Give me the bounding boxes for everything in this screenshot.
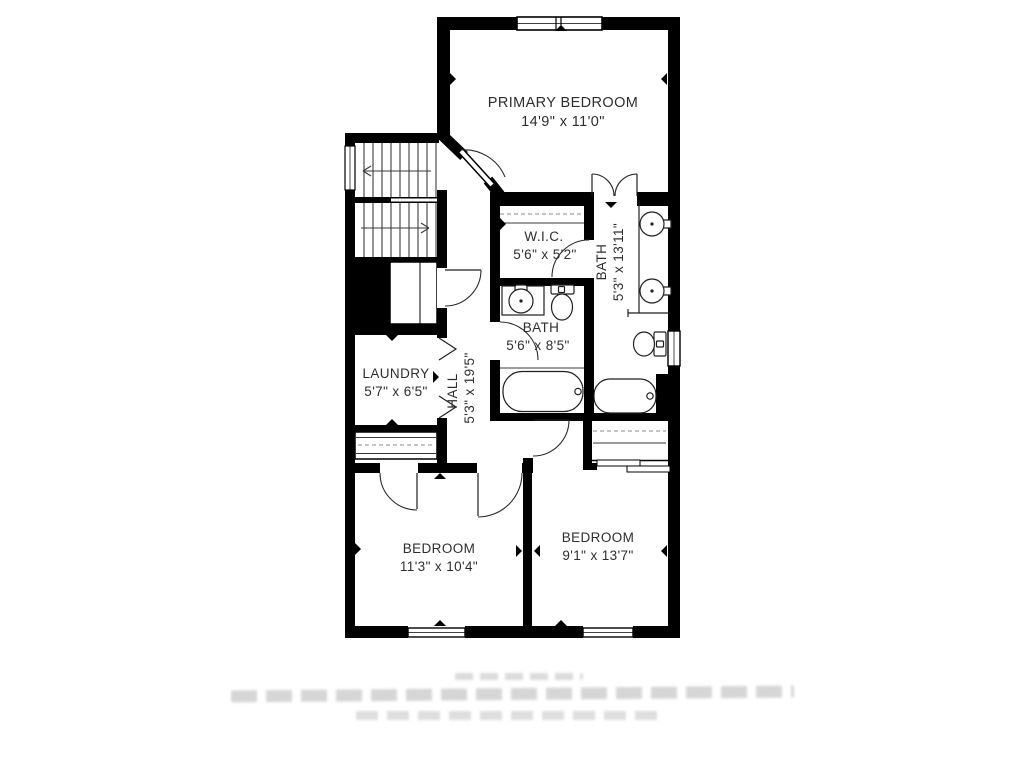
sliding-door-panel (597, 460, 640, 466)
under-stair-cabinet (390, 262, 437, 324)
room-label-primary-bedroom: PRIMARY BEDROOM (488, 95, 639, 111)
primary-bath-double-door (592, 174, 637, 196)
room-label-bedroom-right: BEDROOM (562, 530, 635, 545)
room-label-wic: W.I.C. (524, 229, 563, 244)
sink-icon (640, 279, 671, 303)
sliding-door-panel (627, 466, 670, 472)
toilet-icon (551, 285, 574, 320)
room-dims-hall-bath: 5'6" x 8'5" (506, 338, 569, 353)
bathtub-icon (503, 372, 583, 412)
primary-bath-vanity (628, 200, 671, 317)
stair-direction-arrow-down (361, 223, 429, 233)
primary-bath-window (668, 331, 680, 366)
laundry-hall-closet (355, 432, 437, 459)
floor-plan-page: PRIMARY BEDROOM 14'9" x 11'0" W.I.C. 5'6… (0, 0, 1024, 768)
floor-plan-drawing: PRIMARY BEDROOM 14'9" x 11'0" W.I.C. 5'6… (0, 0, 1024, 768)
toilet-icon (634, 332, 667, 356)
bedroom-left-window (408, 628, 465, 637)
room-label-hall-bath: BATH (523, 320, 560, 335)
room-label-hall: HALL (445, 373, 460, 408)
room-dims-primary-bath: 5'3" x 13'11" (611, 223, 626, 301)
blurred-disclaimer-line (356, 711, 664, 720)
bedroom-right-entry-door (533, 420, 569, 456)
hall-closet-door-gap (437, 268, 447, 308)
bedroom-left-entry-door (478, 473, 522, 517)
room-label-bedroom-left: BEDROOM (403, 541, 476, 556)
room-dims-hall: 5'3" x 19'5" (462, 352, 477, 423)
room-dims-laundry: 5'7" x 6'5" (364, 384, 427, 399)
room-dims-bedroom-right: 9'1" x 13'7" (562, 548, 633, 563)
hall-bath-vanity (502, 285, 544, 315)
bathtub-icon (594, 379, 656, 413)
room-dims-bedroom-left: 11'3" x 10'4" (400, 559, 478, 574)
hall-closet-door (445, 270, 481, 306)
room-label-primary-bath: BATH (594, 244, 609, 281)
room-dims-primary-bedroom: 14'9" x 11'0" (521, 114, 605, 130)
sink-icon (640, 212, 671, 236)
blurred-disclaimer-line (455, 673, 583, 680)
stair-treads-upper (364, 143, 436, 197)
room-dims-wic: 5'6" x 5'2" (513, 247, 576, 262)
primary-bedroom-door (460, 150, 505, 185)
wic-rod-and-shelf (500, 214, 584, 223)
room-label-laundry: LAUNDRY (362, 366, 429, 381)
bedroom-right-window (583, 628, 633, 637)
bedroom-left-closet-door (380, 473, 417, 510)
stairwell-window (345, 146, 355, 190)
